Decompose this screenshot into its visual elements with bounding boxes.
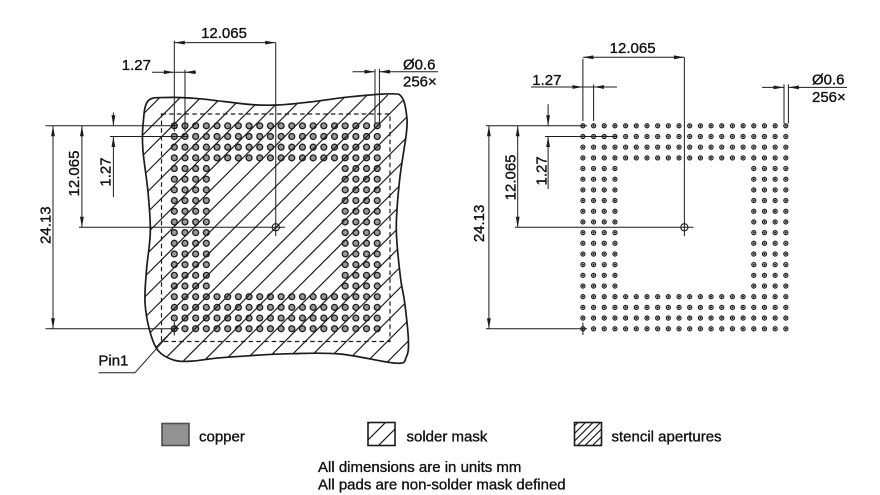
svg-text:copper: copper [199, 428, 245, 445]
svg-text:24.13: 24.13 [38, 206, 55, 244]
svg-text:All pads are non-solder mask d: All pads are non-solder mask defined [318, 476, 566, 493]
svg-text:stencil apertures: stencil apertures [612, 428, 722, 445]
svg-text:1.27: 1.27 [534, 156, 551, 185]
svg-text:1.27: 1.27 [97, 157, 114, 186]
svg-text:12.065: 12.065 [201, 25, 247, 42]
svg-text:Pin1: Pin1 [98, 353, 128, 370]
svg-text:256×: 256× [403, 74, 437, 91]
svg-text:1.27: 1.27 [122, 57, 151, 74]
svg-text:12.065: 12.065 [502, 154, 519, 200]
svg-text:Ø0.6: Ø0.6 [403, 56, 436, 73]
svg-text:24.13: 24.13 [471, 205, 488, 243]
svg-text:12.065: 12.065 [610, 40, 656, 57]
svg-text:12.065: 12.065 [66, 151, 83, 197]
svg-text:256×: 256× [812, 89, 846, 106]
svg-text:Ø0.6: Ø0.6 [812, 72, 845, 89]
svg-text:solder mask: solder mask [407, 428, 488, 445]
svg-text:1.27: 1.27 [532, 72, 561, 89]
svg-text:All dimensions are in units mm: All dimensions are in units mm [318, 459, 521, 476]
